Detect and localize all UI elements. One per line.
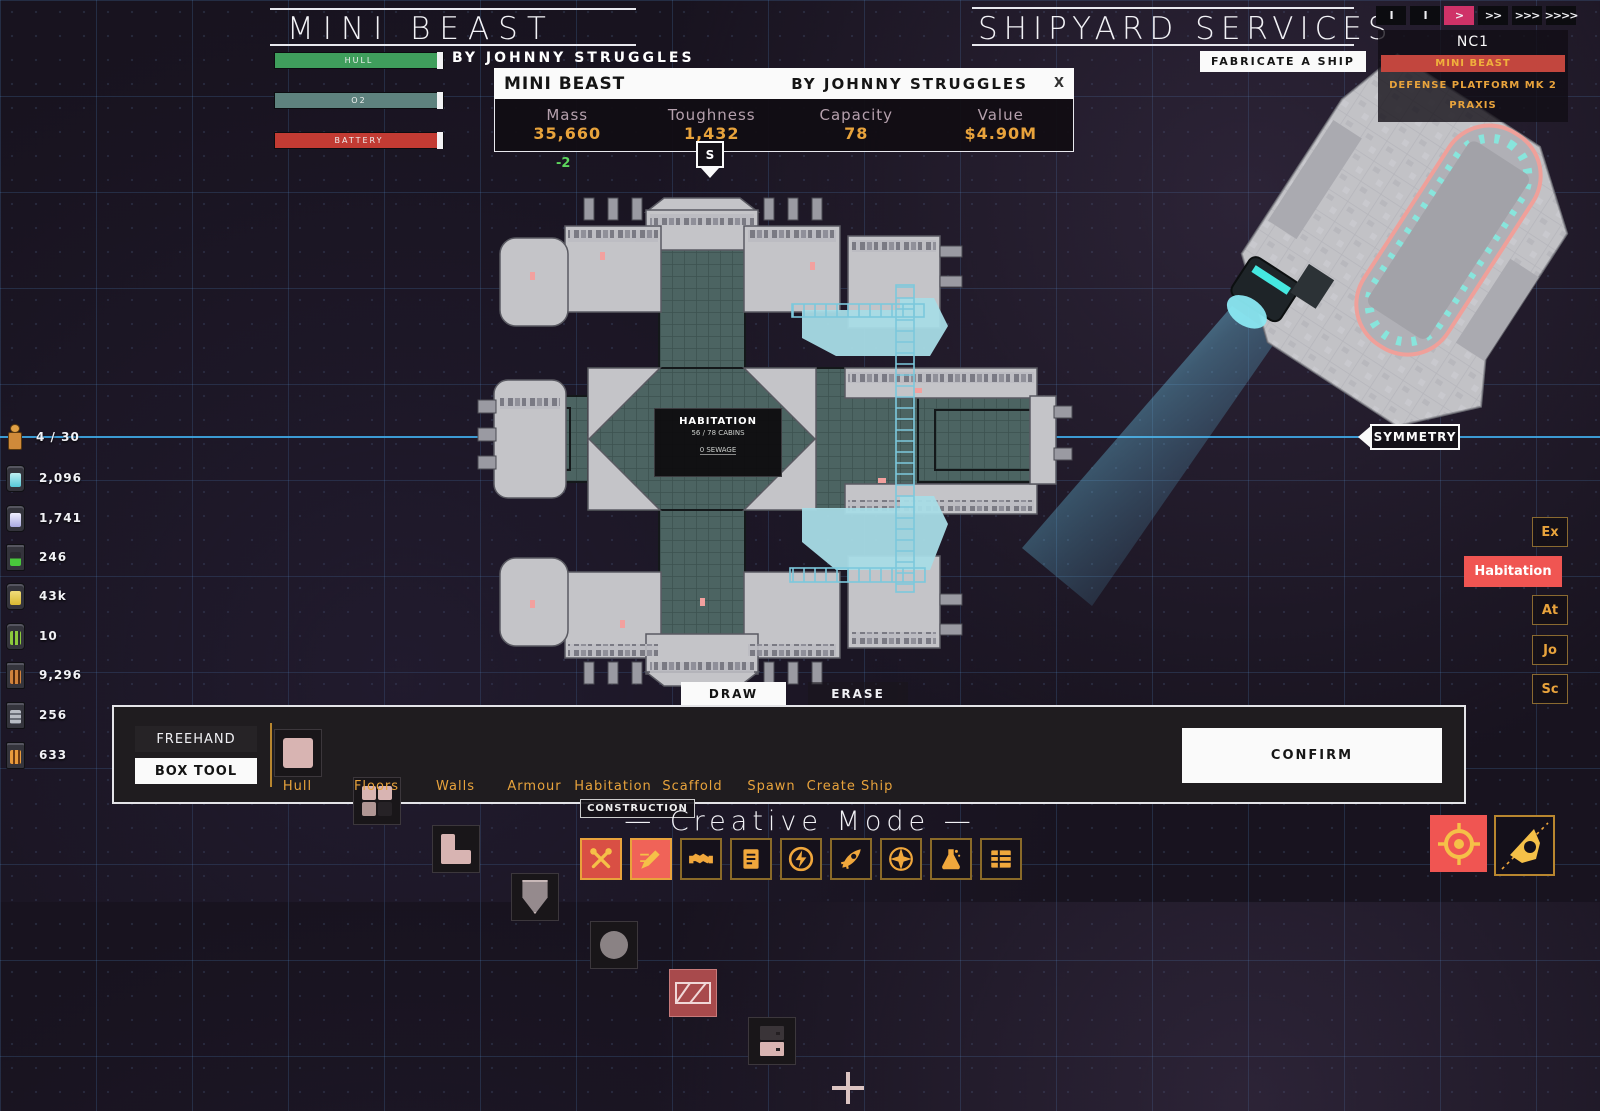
confirm-button[interactable]: CONFIRM — [1182, 728, 1442, 783]
resource-metal-rods: 9,296 — [6, 658, 82, 692]
handshake-icon[interactable] — [680, 838, 722, 880]
tooltip-cabins: 56 / 78 CABINS — [655, 429, 781, 437]
delta-value: -2 — [556, 156, 570, 171]
ship-name-title: MINI BEAST — [287, 11, 555, 47]
resource-battery: 246 — [6, 540, 67, 574]
create-ship-icon — [832, 1072, 864, 1104]
resource-yellow-canister: 43k — [6, 579, 67, 613]
stat-capacity: Capacity 78 — [784, 99, 929, 151]
hull-bar-label: HULL — [275, 53, 443, 68]
pencil-icon[interactable] — [630, 838, 672, 880]
hull-bar: HULL — [274, 52, 444, 69]
resource-power-cell: 10 — [6, 619, 58, 653]
power-cell-icon — [6, 623, 25, 650]
side-tab-jo[interactable]: Jo — [1532, 635, 1568, 665]
tool-walls[interactable] — [432, 825, 480, 873]
resource-fuel-rods: 633 — [6, 738, 67, 772]
habitation-icon — [600, 931, 628, 959]
target-icon[interactable] — [1430, 815, 1487, 872]
tool-spawn[interactable] — [748, 1017, 796, 1065]
white-canister-icon — [6, 505, 25, 532]
document-icon[interactable] — [730, 838, 772, 880]
construction-toolbar: FREEHAND BOX TOOL Hull Floors Walls Armo… — [112, 705, 1466, 804]
shipyard-rule-bottom — [972, 44, 1354, 46]
close-icon[interactable]: X — [1054, 76, 1064, 91]
selection-marker: S — [696, 141, 724, 168]
info-title: MINI BEAST — [504, 74, 625, 94]
cyan-canister-icon — [6, 465, 25, 492]
metal-rods-icon — [6, 662, 25, 689]
speed-2x-button[interactable]: >> — [1478, 6, 1508, 25]
resource-white-canister: 1,741 — [6, 501, 82, 535]
tool-scaffold[interactable] — [669, 969, 717, 1017]
fleet-item-praxis[interactable]: PRAXIS — [1378, 100, 1568, 111]
freehand-button[interactable]: FREEHAND — [135, 726, 257, 752]
fabricate-ship-button[interactable]: FABRICATE A SHIP — [1200, 51, 1366, 72]
speed-4x-button[interactable]: >>>> — [1546, 6, 1576, 25]
tab-draw[interactable]: DRAW — [681, 682, 786, 705]
energy-icon[interactable] — [780, 838, 822, 880]
bottom-dock — [580, 838, 1022, 880]
title-rule-top — [270, 8, 636, 10]
spawn-icon — [760, 1026, 784, 1056]
resource-crew: 4 / 30 — [6, 420, 80, 454]
creative-mode-label: — Creative Mode — — [560, 806, 1040, 837]
speed-pause2-button[interactable]: I — [1410, 6, 1440, 25]
fleet-item-defense-platform[interactable]: DEFENSE PLATFORM MK 2 — [1378, 80, 1568, 91]
o2-bar-label: O2 — [275, 93, 443, 108]
walls-icon — [441, 834, 471, 864]
battery-icon — [6, 544, 25, 571]
tab-erase[interactable]: ERASE — [808, 682, 908, 705]
crew-icon — [6, 424, 22, 450]
info-author: BY JOHNNY STRUGGLES — [791, 75, 1028, 93]
speed-3x-button[interactable]: >>> — [1512, 6, 1542, 25]
ship-pointer-icon[interactable] — [1494, 815, 1555, 876]
stat-value: Value $4.90M — [929, 99, 1074, 151]
speed-1x-button[interactable]: > — [1444, 6, 1474, 25]
tooltip-title: HABITATION — [655, 416, 781, 427]
side-tab-at[interactable]: At — [1532, 595, 1568, 625]
yellow-canister-icon — [6, 583, 25, 610]
tools-icon[interactable] — [580, 838, 622, 880]
ship-info-panel: MINI BEAST BY JOHNNY STRUGGLES X Mass 35… — [494, 68, 1074, 152]
shipyard-rule-top — [972, 7, 1354, 9]
tool-armour[interactable] — [511, 873, 559, 921]
compass-icon[interactable] — [880, 838, 922, 880]
battery-bar-label: BATTERY — [275, 133, 443, 148]
fleet-title: NC1 — [1378, 34, 1568, 50]
ship-author: BY JOHNNY STRUGGLES — [452, 50, 695, 66]
fuel-rods-icon — [6, 742, 25, 769]
fleet-panel: NC1 MINI BEAST DEFENSE PLATFORM MK 2 PRA… — [1378, 30, 1568, 122]
rocket-icon[interactable] — [830, 838, 872, 880]
tooltip-sewage: 0 SEWAGE — [700, 446, 737, 455]
marker-pointer — [701, 168, 719, 178]
title-rule-bottom — [270, 44, 636, 46]
speed-pause-button[interactable]: I — [1376, 6, 1406, 25]
side-tab-ex[interactable]: Ex — [1532, 517, 1568, 547]
o2-bar: O2 — [274, 92, 444, 109]
scaffold-icon — [675, 982, 711, 1004]
resource-cyan-canister: 2,096 — [6, 461, 82, 495]
shipyard-title: SHIPYARD SERVICES — [978, 11, 1394, 47]
habitation-tooltip: HABITATION 56 / 78 CABINS 0 SEWAGE — [654, 408, 782, 477]
side-tab-habitation[interactable]: Habitation — [1464, 556, 1562, 587]
speed-controls: I I > >> >>> >>>> — [1376, 6, 1576, 25]
tool-create-ship[interactable] — [825, 1065, 871, 1111]
side-tab-sc[interactable]: Sc — [1532, 674, 1568, 704]
armour-icon — [520, 880, 550, 914]
box-tool-button[interactable]: BOX TOOL — [135, 758, 257, 784]
tool-habitation[interactable] — [590, 921, 638, 969]
circuits-icon — [6, 702, 25, 729]
symmetry-badge[interactable]: SYMMETRY — [1358, 424, 1460, 450]
stat-mass: Mass 35,660 — [495, 99, 640, 151]
hull-icon — [283, 738, 313, 768]
table-icon[interactable] — [980, 838, 1022, 880]
resource-circuits: 256 — [6, 698, 67, 732]
battery-bar: BATTERY — [274, 132, 444, 149]
tool-hull[interactable] — [274, 729, 322, 777]
flask-icon[interactable] — [930, 838, 972, 880]
fleet-item-mini-beast[interactable]: MINI BEAST — [1381, 55, 1565, 72]
toolbar-divider — [270, 723, 272, 787]
